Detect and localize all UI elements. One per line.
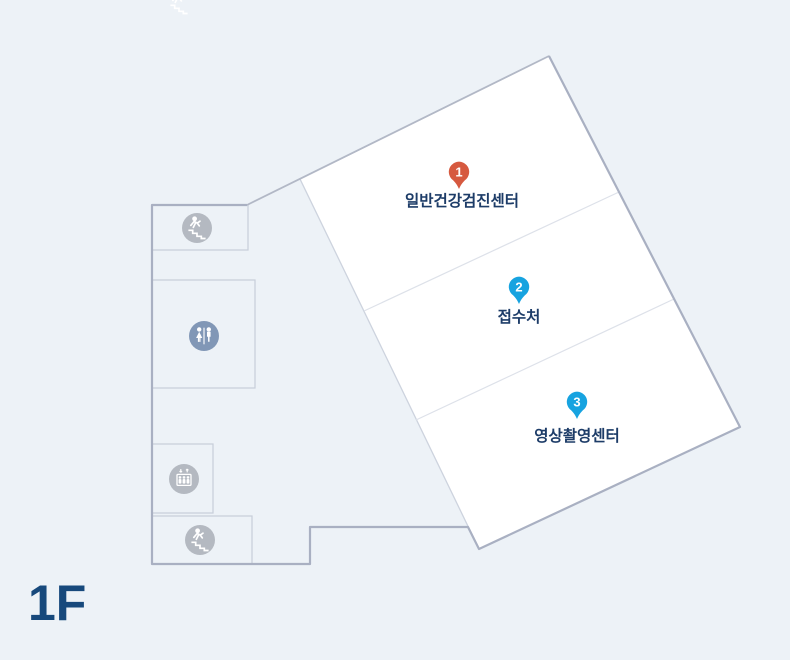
restroom-icon — [189, 321, 219, 351]
marker-3-label: 영상촬영센터 — [534, 427, 620, 445]
marker-2-number: 2 — [515, 279, 522, 294]
marker-1-label: 일반건강검진센터 — [405, 191, 519, 210]
elevator-icon — [169, 464, 199, 494]
marker-1-number: 1 — [455, 164, 462, 179]
stairs-icon — [182, 213, 212, 243]
marker-3-number: 3 — [573, 394, 580, 409]
floor-map: 1 일반건강검진센터 2 접수처 3 영상촬영센터 1F — [0, 0, 790, 660]
floor-map-canvas: 1 일반건강검진센터 2 접수처 3 영상촬영센터 1F — [0, 0, 790, 660]
floor-label: 1F — [28, 575, 86, 631]
main-room-polygon — [300, 56, 740, 549]
stairs-icon-top-partial — [170, 0, 187, 14]
marker-2-label: 접수처 — [498, 307, 541, 326]
stairs-icon — [185, 525, 215, 555]
